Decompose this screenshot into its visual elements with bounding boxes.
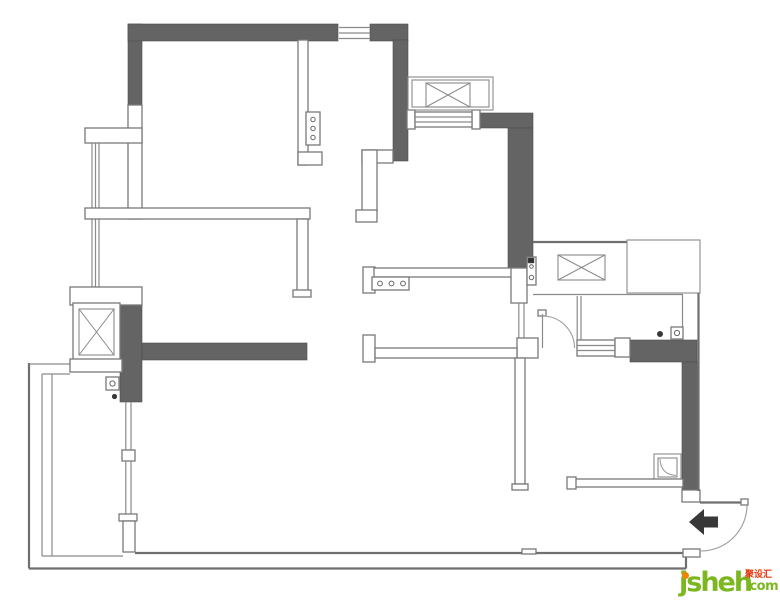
ne-window (415, 112, 472, 127)
wall-southwest-pillar (120, 305, 142, 402)
bedroom2-door-arc (543, 316, 575, 348)
ne-window-post-east (472, 110, 480, 129)
balcony-door-dot (112, 394, 117, 399)
hall-latch-knob-1 (530, 265, 534, 269)
south-wall-tick (522, 549, 536, 554)
watermark-domain-suffix: .com (745, 581, 778, 593)
elevator-foot (70, 359, 122, 372)
balcony-slider-end (119, 514, 137, 521)
wall-bath-north (630, 340, 697, 362)
wall-bedroom2-north (375, 348, 517, 358)
entry-door-arc (701, 505, 747, 551)
balcony-latch-knob (110, 381, 115, 386)
ne-shaft-x-symbol (426, 83, 470, 107)
wall-west-upper (128, 105, 142, 219)
wall-kitchen-west (298, 40, 308, 165)
wall-bedroom2-north-cap (363, 335, 375, 362)
balcony-slider-mid (122, 450, 135, 461)
elevator-head (70, 287, 142, 305)
wall-northeast (475, 113, 533, 128)
kitchen-panel-knob-1 (311, 117, 315, 121)
wall-north (128, 24, 338, 41)
watermark-logo: jsheh 聚设汇 .com (679, 568, 779, 600)
shower-tray-curve (660, 459, 676, 476)
wall-bedroom1-east-cap (293, 290, 311, 297)
entry-arrow (689, 509, 718, 535)
wall-hall-east (508, 128, 533, 268)
wall-bedroom2-east-cap (512, 484, 528, 490)
hall-door-post (511, 268, 527, 303)
wall-kitchen-east (393, 40, 408, 161)
wall-bedroom2-east (515, 358, 525, 484)
wall-bath-south (568, 479, 683, 487)
watermark-brand-text: jsheh (679, 568, 751, 598)
hall-latch-knob-2 (529, 275, 533, 279)
counter-hob-knob-1 (378, 281, 383, 286)
wall-kitchen-west-foot (298, 152, 322, 165)
ne-window-post-west (407, 110, 415, 129)
bath-window (577, 340, 615, 356)
entry-wall-cap (682, 490, 700, 502)
utility-box (627, 240, 700, 293)
entry-door-leaf-tip (741, 499, 748, 505)
wall-bedroom1-east (297, 219, 308, 292)
shower-tray-inner (658, 458, 677, 477)
bath-window-post (615, 338, 630, 357)
hall-latch-pin (528, 258, 534, 263)
watermark-side: 聚设汇 .com (745, 570, 778, 593)
counter-hob-knob-3 (401, 281, 406, 286)
counter-bar (374, 268, 513, 277)
wall-balcony-post (123, 521, 135, 552)
kitchen-panel-knob-3 (311, 135, 315, 139)
watermark-dot-icon (682, 572, 689, 579)
wall-bath-east (682, 362, 698, 490)
bay-window-head (85, 128, 142, 143)
bath-door-dot (657, 331, 663, 337)
counter-hob-knob-2 (389, 281, 394, 286)
closet-x-symbol (558, 255, 605, 280)
wall-north-right (370, 24, 408, 41)
entry-sill (683, 549, 700, 557)
wall-bedroom1-south (85, 208, 310, 219)
wall-step-foot (356, 210, 377, 222)
kitchen-panel-knob-2 (311, 126, 315, 130)
hall-junction-post (517, 338, 538, 358)
floor-plan: jsheh 聚设汇 .com (0, 0, 780, 602)
wall-bath-south-cap (567, 477, 576, 489)
bath-door-knob (674, 330, 679, 335)
wall-living-south (142, 343, 307, 360)
floor-plan-canvas (0, 0, 780, 602)
wall-step-vertical (362, 150, 377, 212)
